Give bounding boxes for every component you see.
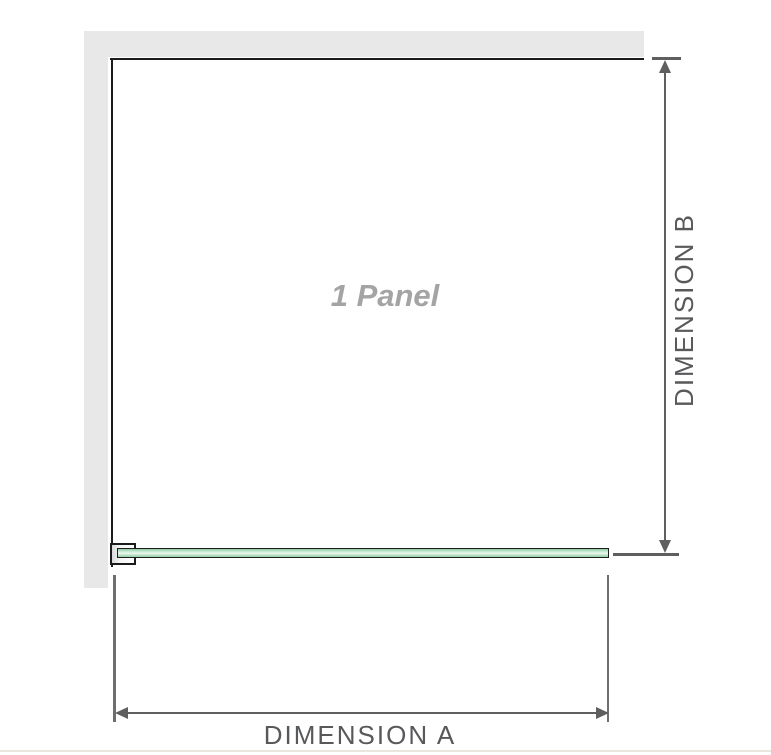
extension-line-left: [113, 575, 116, 722]
dimension-a-line: [117, 712, 606, 715]
panel-outline-left: [111, 58, 113, 567]
wall-band-top: [84, 31, 644, 57]
bottom-divider: [0, 750, 771, 752]
glass-panel-bar: [117, 548, 609, 558]
dimension-b-line: [664, 62, 667, 548]
extension-line-right: [607, 575, 610, 722]
wall-band-left: [84, 31, 108, 588]
panel-outline-top: [110, 58, 644, 60]
shower-panel-dimension-diagram: 1 Panel DIMENSION B DIMENSION A: [0, 0, 771, 755]
arrow-up-icon: [659, 60, 671, 73]
arrow-down-icon: [659, 540, 671, 553]
arrow-left-icon: [115, 707, 128, 719]
dimension-b-cap-bottom: [613, 553, 679, 556]
arrow-right-icon: [596, 707, 609, 719]
